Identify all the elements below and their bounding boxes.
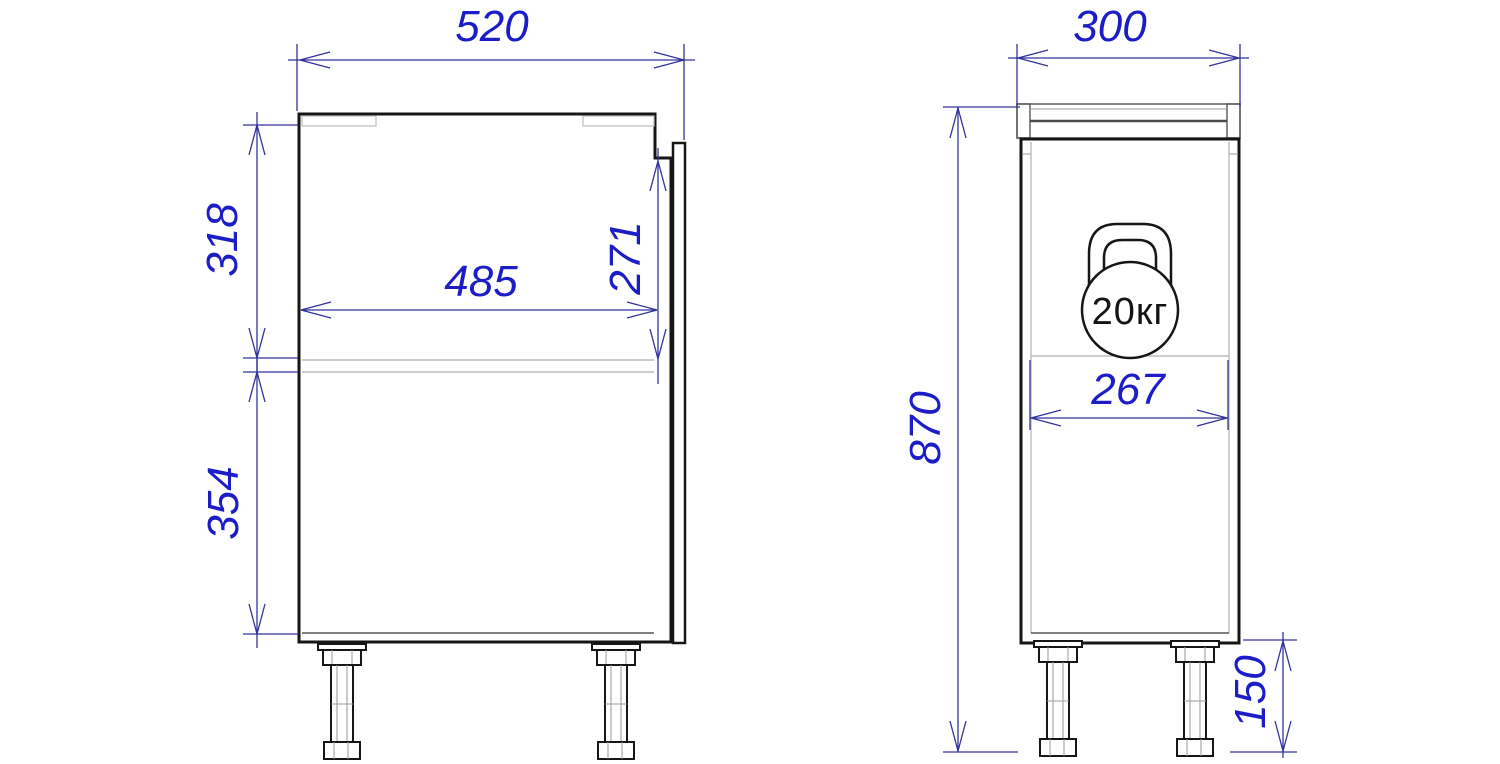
side-view: 20кг [1017, 104, 1240, 756]
adjustable-leg [1034, 641, 1082, 756]
cabinet-drawing: 20кг 520 485 318 [0, 0, 1500, 764]
dim-271-label: 271 [601, 221, 650, 295]
dim-354: 354 [199, 359, 298, 648]
worktop [1017, 104, 1240, 138]
door-panel [673, 143, 685, 643]
dim-870: 870 [901, 107, 1020, 752]
dim-150-label: 150 [1226, 655, 1275, 729]
drawing-canvas: 20кг 520 485 318 [0, 0, 1500, 764]
dim-318: 318 [198, 112, 298, 372]
dim-485-label: 485 [444, 257, 518, 306]
adjustable-leg [592, 644, 640, 759]
dim-267-label: 267 [1090, 365, 1166, 414]
dim-150: 150 [1226, 632, 1297, 758]
worktop-post-right [1227, 104, 1240, 138]
adjustable-leg [318, 644, 366, 759]
cabinet-carcass [299, 114, 671, 642]
dim-870-label: 870 [901, 391, 950, 465]
dim-354-label: 354 [199, 466, 248, 539]
dim-318-label: 318 [198, 203, 247, 277]
dim-300: 300 [1008, 2, 1249, 106]
dim-520-label: 520 [455, 2, 529, 51]
kettlebell-icon: 20кг [1082, 224, 1178, 358]
adjustable-leg [1171, 641, 1219, 756]
load-capacity-label: 20кг [1092, 291, 1169, 333]
front-view [299, 114, 685, 759]
dim-300-label: 300 [1073, 2, 1147, 51]
worktop-post-left [1017, 104, 1030, 138]
